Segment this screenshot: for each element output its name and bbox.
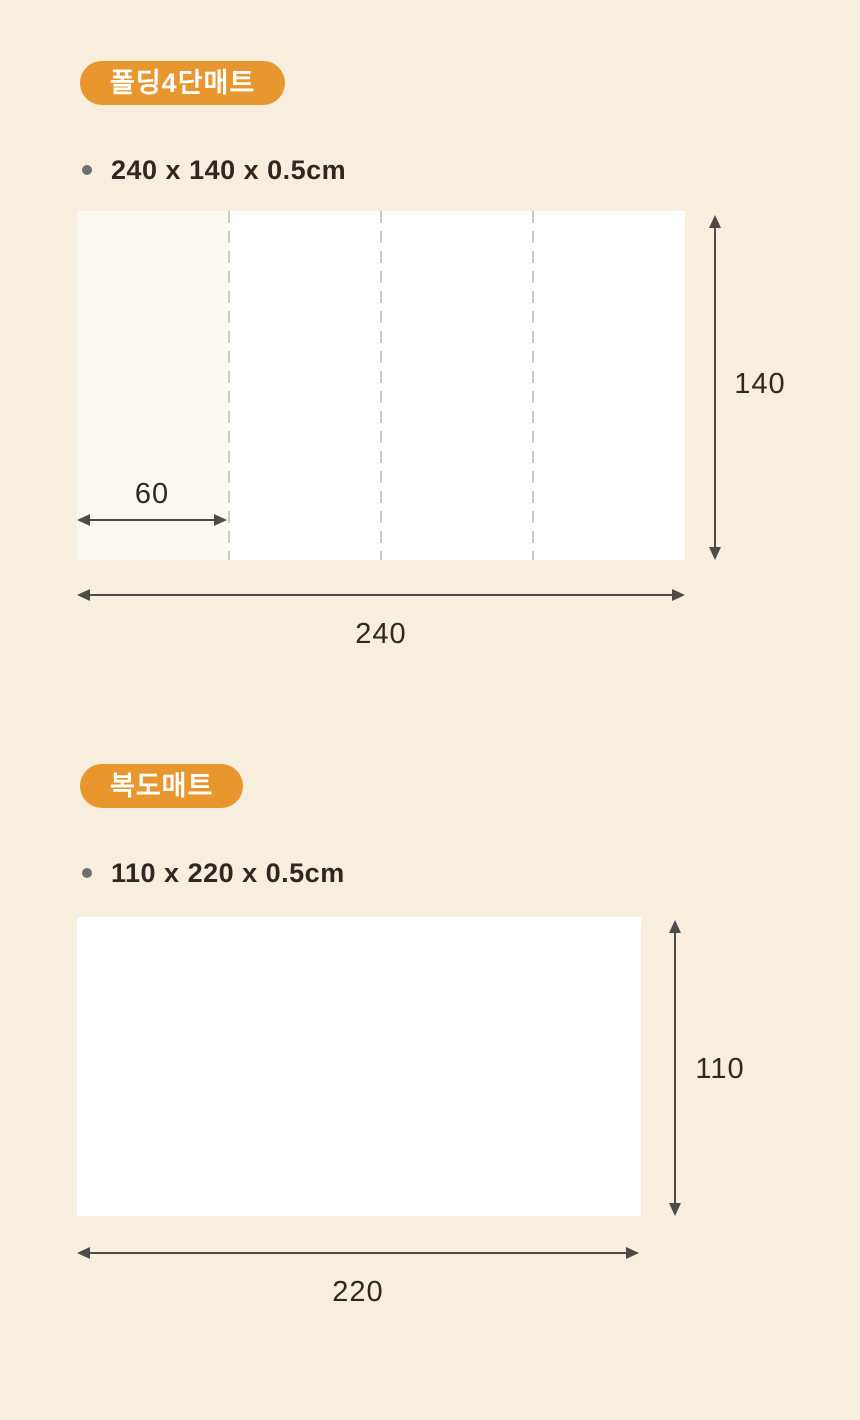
panel-width-arrow-icon xyxy=(79,519,225,521)
badge-hallway-mat: 복도매트 xyxy=(80,764,243,808)
bullet-dot-icon xyxy=(82,165,92,175)
mat-height-label: 140 xyxy=(730,368,790,401)
product-dimension-infographic: 폴딩4단매트 240 x 140 x 0.5cm 60 140 240 복도매트… xyxy=(0,0,860,1420)
mat-width-arrow-icon xyxy=(79,594,683,596)
mat-width-label: 220 xyxy=(77,1276,639,1309)
hallway-mat-diagram xyxy=(77,917,641,1216)
fold-line-icon xyxy=(228,211,230,560)
bullet-dot-icon xyxy=(82,868,92,878)
badge-folding-4panel-mat: 폴딩4단매트 xyxy=(80,61,285,105)
fold-line-icon xyxy=(380,211,382,560)
spec-text-folding-mat: 240 x 140 x 0.5cm xyxy=(111,155,346,186)
mat-width-label: 240 xyxy=(77,618,685,651)
mat-height-arrow-icon xyxy=(714,217,716,558)
spec-row-folding-mat: 240 x 140 x 0.5cm xyxy=(82,155,346,185)
fold-line-icon xyxy=(532,211,534,560)
panel-width-label: 60 xyxy=(77,478,227,511)
mat-height-arrow-icon xyxy=(674,922,676,1214)
spec-row-hallway-mat: 110 x 220 x 0.5cm xyxy=(82,858,345,888)
mat-width-arrow-icon xyxy=(79,1252,637,1254)
mat-height-label: 110 xyxy=(690,1053,750,1086)
spec-text-hallway-mat: 110 x 220 x 0.5cm xyxy=(111,858,345,889)
